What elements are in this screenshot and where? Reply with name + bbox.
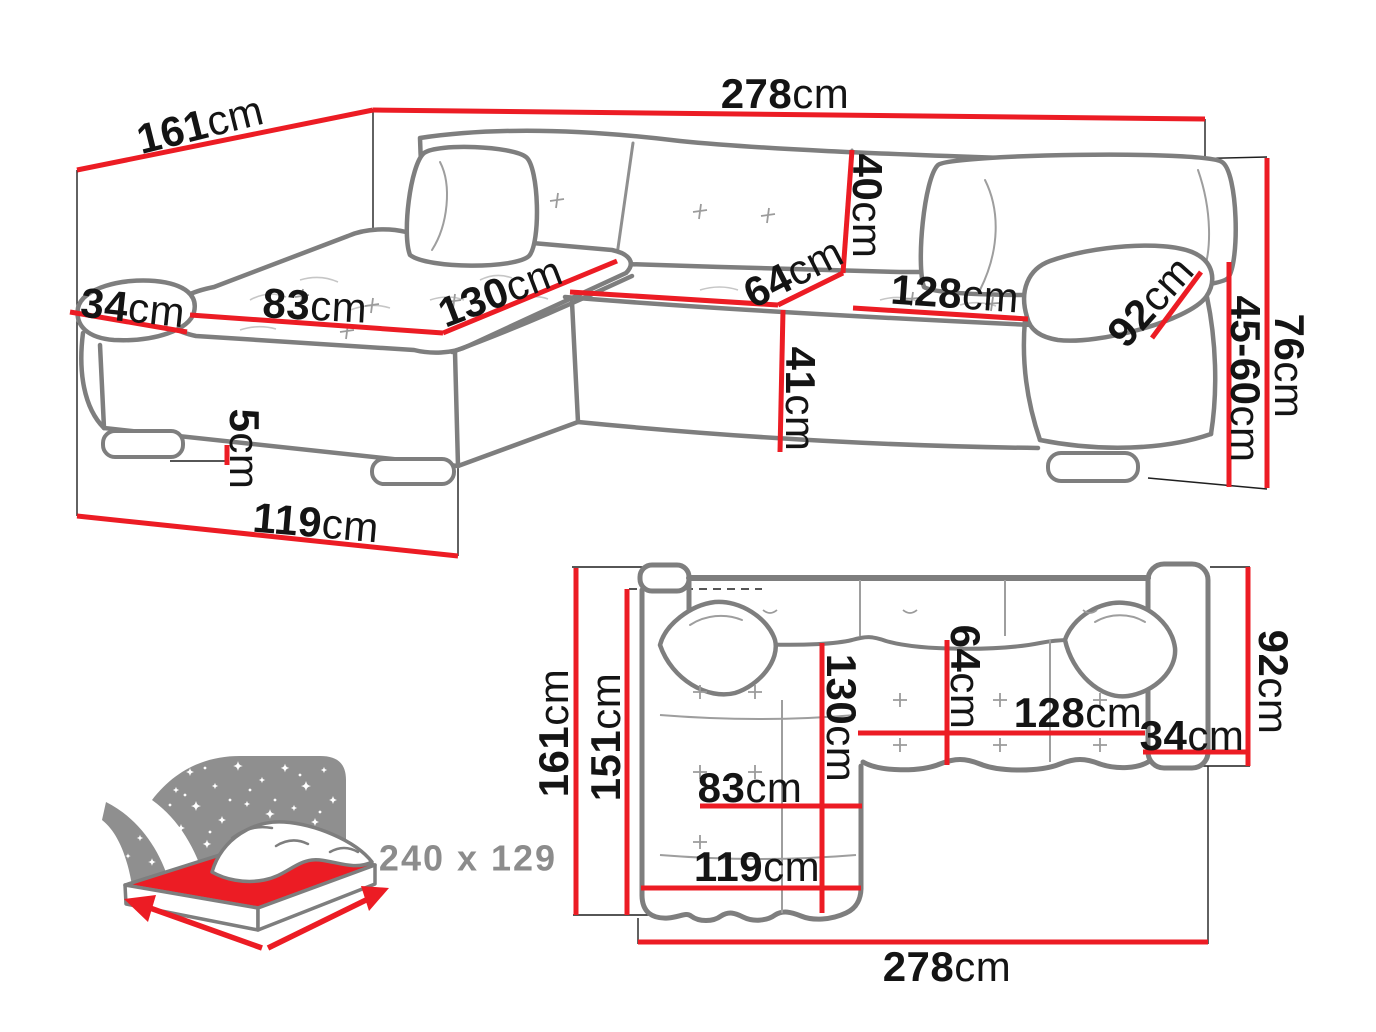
dim-unit: cm: [1085, 689, 1142, 736]
dim-value: 128: [889, 265, 964, 317]
plan-dim-label-130: 130cm: [819, 654, 866, 783]
dim-unit: cm: [845, 201, 892, 258]
dim-label-128: 128cm: [889, 265, 1021, 321]
dim-unit: cm: [961, 270, 1021, 321]
plan-view: 161cm 151cm 92cm 64cm 130cm 128cm 34cm 8…: [530, 564, 1298, 990]
dim-label-119: 119cm: [251, 493, 381, 551]
dim-value: 34: [1140, 712, 1188, 759]
dim-unit: cm: [943, 672, 990, 729]
dim-unit: cm: [126, 283, 188, 336]
dim-unit: cm: [763, 843, 820, 890]
star-dot: [229, 799, 232, 802]
plan-dim-label-34: 34cm: [1140, 712, 1245, 759]
dim-value: 45-60: [1223, 296, 1270, 406]
sofa-leg: [103, 431, 183, 457]
bed-size-label: 240 x 129: [379, 838, 557, 879]
plan-dim-label-161: 161cm: [530, 669, 577, 798]
dim-unit: cm: [1223, 405, 1270, 462]
dim-value: 76: [1267, 314, 1314, 362]
dim-value: 161: [530, 726, 577, 798]
sleeping-function-icon: 240 x 129: [102, 756, 557, 948]
diagram-canvas: 161cm 278cm 34cm 83cm 130cm 64cm 40cm 12…: [0, 0, 1376, 1032]
dim-value: 128: [1014, 689, 1086, 736]
star-dot: [299, 774, 302, 777]
plan-arm-left: [640, 565, 689, 591]
star-dot: [204, 767, 207, 770]
star-dot: [319, 811, 322, 814]
plan-chaise-bottom: [642, 888, 861, 921]
dim-label-278: 278cm: [721, 70, 850, 117]
dim-unit: cm: [1251, 677, 1298, 734]
dim-value: 278: [883, 943, 955, 990]
dim-label-40: 40cm: [845, 154, 892, 259]
dim-value: 34: [78, 278, 131, 330]
plan-pillow-right: [1065, 603, 1175, 697]
dim-value: 130: [819, 654, 866, 726]
star-dot: [274, 799, 277, 802]
dim-label-45-60: 45-60cm: [1223, 296, 1270, 463]
dim-unit: cm: [320, 499, 381, 551]
plan-seat-bottom: [863, 760, 1148, 771]
dim-value: 92: [1251, 630, 1298, 678]
dim-value: 83: [261, 279, 311, 328]
dim-value: 161: [132, 99, 213, 162]
perspective-view: 161cm 278cm 34cm 83cm 130cm 64cm 40cm 12…: [70, 70, 1314, 557]
plan-dim-label-64: 64cm: [943, 625, 990, 730]
dim-unit: cm: [1267, 361, 1314, 418]
dim-value: 278: [721, 70, 793, 117]
dim-value: 5: [222, 409, 269, 433]
dim-value: 151: [582, 730, 629, 802]
dim-label-5: 5cm: [222, 409, 269, 490]
dim-unit: cm: [309, 281, 368, 331]
arrow-head-left-icon: [124, 895, 156, 922]
dim-unit: cm: [582, 673, 629, 730]
dim-unit: cm: [530, 669, 577, 726]
plan-dim-label-278: 278cm: [883, 943, 1012, 990]
plan-dim-label-128: 128cm: [1014, 689, 1143, 736]
dim-label-83: 83cm: [261, 279, 368, 331]
pillow-left: [407, 147, 537, 266]
star-dot: [184, 794, 187, 797]
dim-label-76: 76cm: [1267, 314, 1314, 419]
sofa-dimension-diagram: 161cm 278cm 34cm 83cm 130cm 64cm 40cm 12…: [0, 0, 1376, 1032]
star-dot: [169, 804, 172, 807]
dim-unit: cm: [778, 394, 825, 451]
plan-dim-label-151: 151cm: [582, 673, 629, 802]
dim-label-41: 41cm: [778, 347, 825, 452]
dim-unit: cm: [819, 725, 866, 782]
dim-value: 41: [778, 347, 825, 395]
plan-dim-label-119: 119cm: [694, 843, 820, 890]
dim-label-161: 161cm: [132, 86, 268, 163]
star-dot: [249, 789, 252, 792]
arrow-head-right-icon: [361, 886, 389, 911]
sofa-leg: [1048, 453, 1138, 481]
plan-dim-label-92: 92cm: [1251, 630, 1298, 735]
dim-unit: cm: [201, 86, 268, 145]
dim-unit: cm: [1187, 712, 1244, 759]
dim-unit: cm: [222, 432, 269, 489]
dim-value: 64: [943, 625, 990, 673]
dim-value: 83: [698, 764, 746, 811]
dim-unit: cm: [954, 943, 1011, 990]
dim-value: 40: [845, 154, 892, 202]
dim-unit: cm: [792, 70, 849, 117]
dim-unit: cm: [745, 764, 802, 811]
star-dot: [209, 831, 212, 834]
dim-value: 119: [251, 493, 324, 546]
dim-value: 119: [694, 843, 763, 890]
plan-dim-label-83: 83cm: [698, 764, 803, 811]
sofa-leg: [372, 459, 454, 484]
